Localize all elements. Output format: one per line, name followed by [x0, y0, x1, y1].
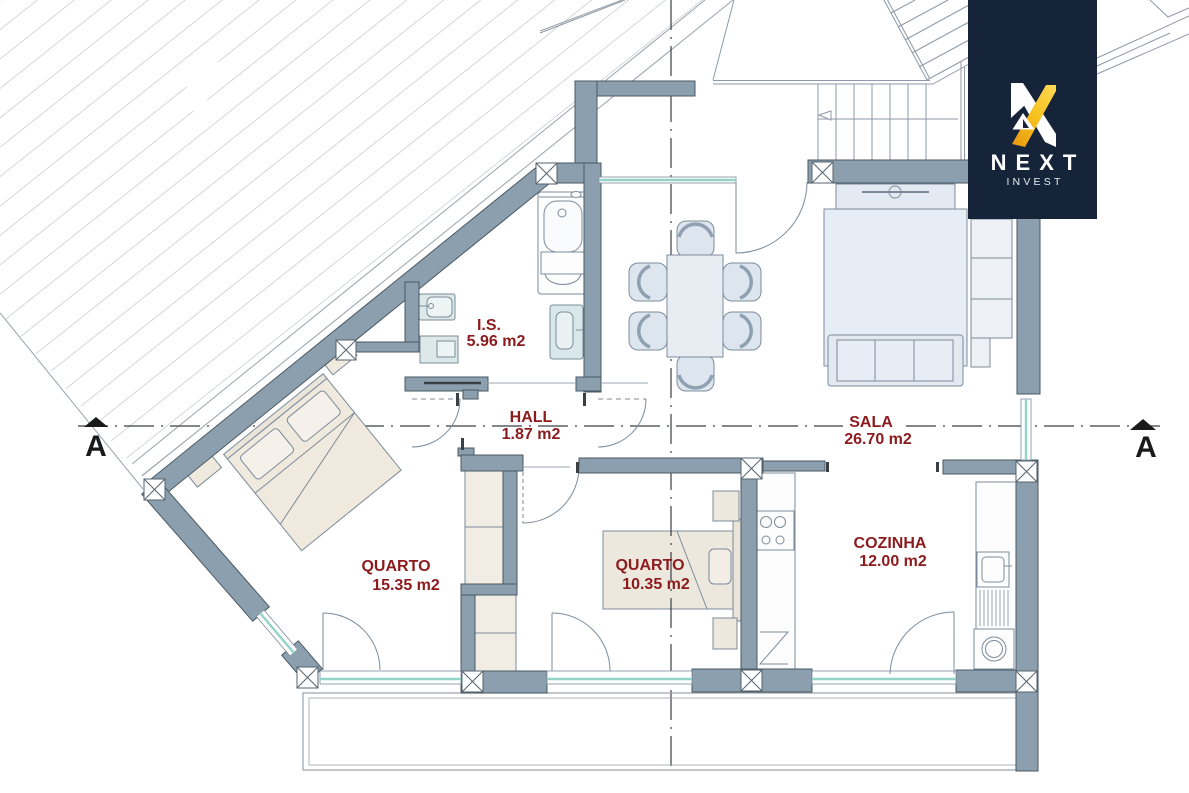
svg-text:COZINHA: COZINHA: [854, 535, 927, 552]
svg-text:SALA: SALA: [849, 414, 893, 431]
svg-text:A: A: [1135, 431, 1157, 464]
svg-text:26.70 m2: 26.70 m2: [844, 431, 912, 448]
svg-text:HALL: HALL: [510, 409, 553, 426]
svg-text:I.S.: I.S.: [477, 317, 501, 334]
svg-text:INVEST: INVEST: [1006, 176, 1063, 188]
svg-text:QUARTO: QUARTO: [361, 558, 430, 575]
svg-text:10.35 m2: 10.35 m2: [622, 576, 690, 593]
svg-text:12.00 m2: 12.00 m2: [859, 553, 927, 570]
svg-text:5.96 m2: 5.96 m2: [467, 333, 526, 350]
svg-text:A: A: [85, 430, 107, 463]
svg-text:QUARTO: QUARTO: [615, 557, 684, 574]
svg-text:1.87 m2: 1.87 m2: [502, 426, 561, 443]
svg-text:NEXT: NEXT: [991, 150, 1086, 175]
svg-text:15.35 m2: 15.35 m2: [372, 577, 440, 594]
